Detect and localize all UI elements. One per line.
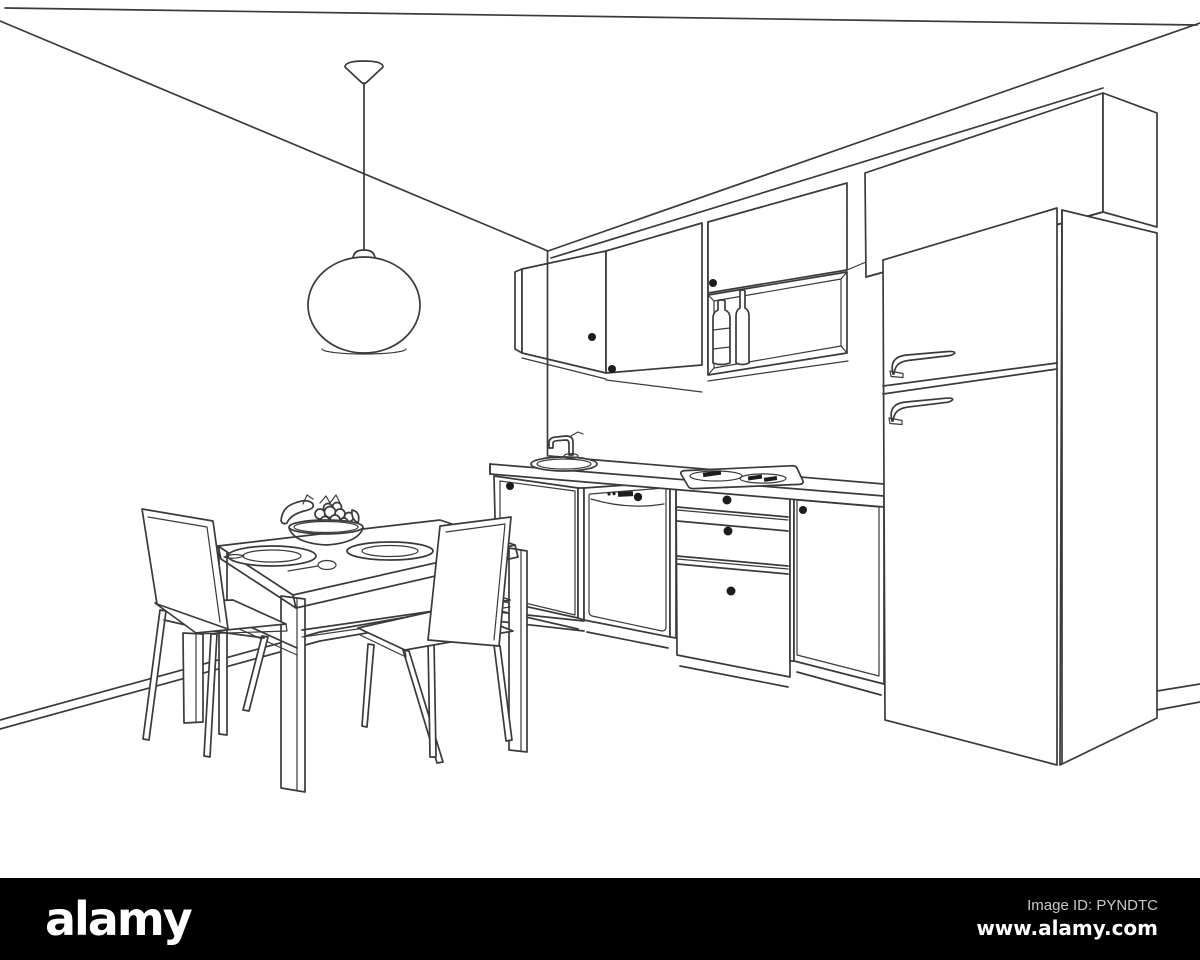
lamp-canopy — [345, 61, 383, 84]
dishwasher-button — [634, 493, 642, 501]
alamy-watermark-bar: alamy Image ID: PYNDTC www.alamy.com — [0, 878, 1200, 960]
door-cabinet — [794, 495, 884, 684]
kitchen-counter — [490, 432, 884, 695]
refrigerator — [883, 208, 1157, 765]
plate — [347, 542, 433, 560]
stock-image-page: alamy Image ID: PYNDTC www.alamy.com — [0, 0, 1200, 960]
door-knob — [799, 506, 807, 514]
cooktop — [681, 466, 803, 489]
alamy-url: www.alamy.com — [976, 916, 1158, 941]
drawer-knob — [727, 587, 736, 596]
pendant-lamp — [308, 61, 420, 354]
plate — [228, 546, 316, 566]
drawer-knob — [724, 527, 733, 536]
drawer-knob — [723, 496, 732, 505]
cabinet-stile — [578, 488, 584, 620]
lamp-globe — [308, 257, 420, 353]
faucet — [549, 432, 583, 458]
cabinet-knob — [608, 365, 616, 373]
image-meta: Image ID: PYNDTC www.alamy.com — [976, 897, 1158, 941]
door-knob — [506, 482, 514, 490]
kitchen-sketch-svg — [0, 0, 1200, 878]
cabinet-stile — [670, 482, 676, 638]
sink — [531, 457, 597, 471]
cabinet-knob — [588, 333, 596, 341]
cabinet-knob — [709, 279, 717, 287]
kitchen-sketch-illustration — [0, 0, 1200, 878]
alamy-logo: alamy — [45, 892, 191, 946]
image-id-label: Image ID: PYNDTC — [976, 897, 1158, 916]
